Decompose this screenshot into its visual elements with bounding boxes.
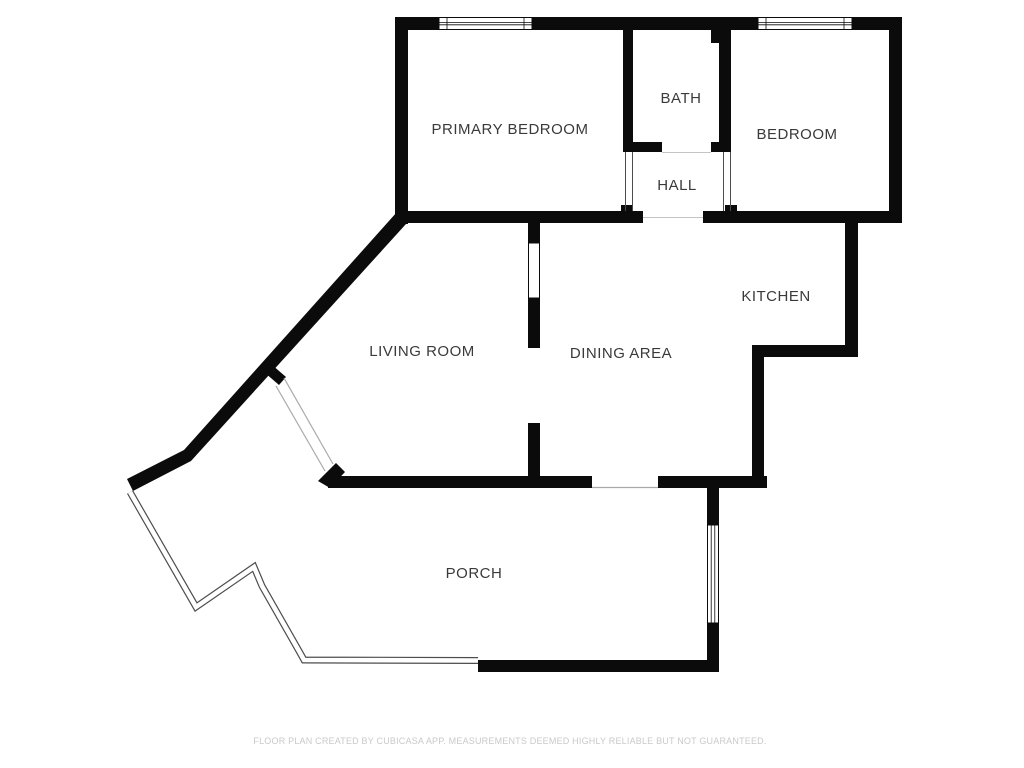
wall-bath-left — [623, 30, 633, 152]
wall-bath-right-notch — [711, 30, 731, 43]
room-label-hall: HALL — [657, 177, 697, 194]
wall-divider-lower — [528, 423, 540, 482]
room-label-primary-bedroom: PRIMARY BEDROOM — [432, 121, 589, 138]
floor-plan-svg: PRIMARY BEDROOM BATH BEDROOM HALL KITCHE… — [0, 0, 1024, 768]
hall-opening-tick-left — [621, 205, 633, 212]
wall-divider-upper — [528, 222, 540, 243]
porch-screen-outline — [130, 492, 478, 661]
window-top-left — [439, 18, 532, 30]
room-label-bath: BATH — [661, 90, 702, 107]
wall-divider-mid — [528, 298, 540, 348]
wall-dining-bottom-left — [328, 476, 592, 488]
wall-left-exterior — [395, 17, 408, 224]
room-label-living-room: LIVING ROOM — [369, 343, 475, 360]
window-living-dining-passthrough — [529, 243, 540, 298]
room-label-bedroom: BEDROOM — [756, 126, 837, 143]
door-living-to-porch-line-1 — [284, 378, 333, 464]
wall-bedrooms-bottom-left — [395, 211, 643, 223]
wall-kitchen-bottom — [752, 345, 858, 357]
wall-bath-right — [719, 30, 731, 152]
wall-dining-bottom-right — [658, 476, 767, 488]
wall-right-exterior — [889, 17, 902, 223]
wall-bath-bottom-right — [711, 142, 731, 152]
wall-porch-bottom — [478, 660, 719, 672]
wall-porch-right-upper — [707, 488, 719, 525]
door-living-to-porch-line-2 — [276, 386, 325, 471]
wall-kitchen-lower-right — [752, 345, 764, 488]
disclaimer-text: FLOOR PLAN CREATED BY CUBICASA APP. MEAS… — [253, 736, 766, 746]
floor-plan: PRIMARY BEDROOM BATH BEDROOM HALL KITCHE… — [0, 0, 1024, 768]
room-label-dining-area: DINING AREA — [570, 345, 672, 362]
wall-diagonal-exterior — [127, 212, 406, 491]
wall-bedrooms-bottom-right — [703, 211, 902, 223]
openings — [130, 152, 731, 661]
wall-bath-bottom-left — [623, 142, 662, 152]
window-top-right — [758, 18, 852, 30]
room-label-porch: PORCH — [446, 565, 503, 582]
windows — [439, 18, 852, 624]
wall-kitchen-right — [845, 211, 858, 357]
room-label-kitchen: KITCHEN — [741, 288, 810, 305]
room-labels: PRIMARY BEDROOM BATH BEDROOM HALL KITCHE… — [369, 90, 837, 582]
window-porch-right — [708, 525, 719, 623]
